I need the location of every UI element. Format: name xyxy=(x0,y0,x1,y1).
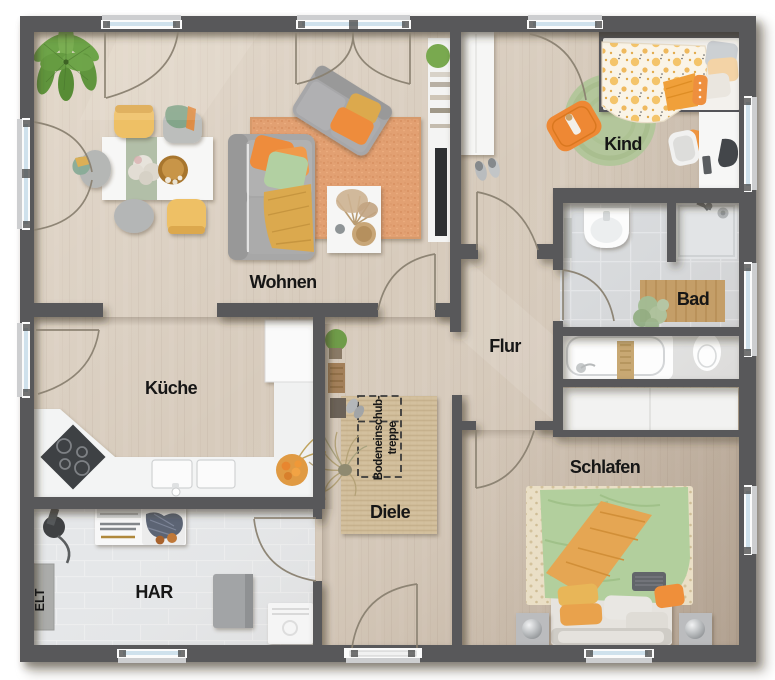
svg-text:treppe: treppe xyxy=(387,422,399,455)
svg-text:Wohnen: Wohnen xyxy=(249,272,316,292)
svg-text:Küche: Küche xyxy=(145,378,198,398)
svg-text:Bad: Bad xyxy=(677,289,709,309)
svg-text:ELT: ELT xyxy=(33,588,47,611)
svg-text:Diele: Diele xyxy=(370,502,411,522)
svg-text:Bodeneinschub-: Bodeneinschub- xyxy=(373,395,385,480)
svg-text:Flur: Flur xyxy=(489,336,521,356)
svg-text:HAR: HAR xyxy=(135,582,173,602)
svg-text:Kind: Kind xyxy=(604,134,642,154)
svg-text:Schlafen: Schlafen xyxy=(570,457,640,477)
